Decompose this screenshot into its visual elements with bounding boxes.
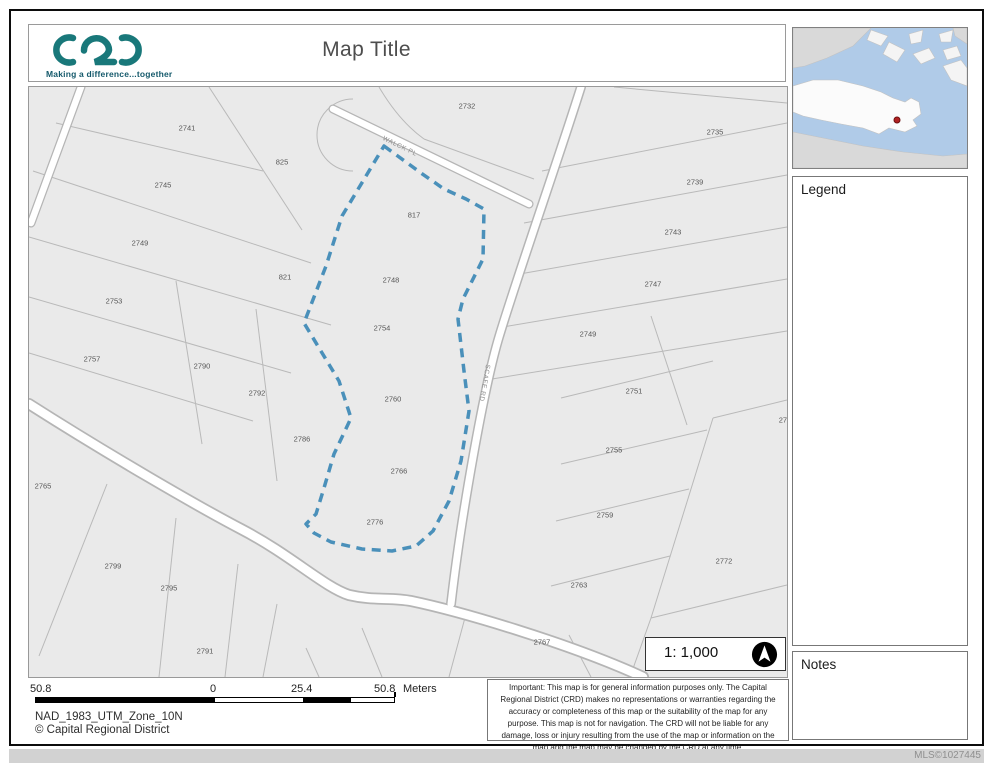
parcel-label: 821 (279, 273, 292, 282)
location-marker-icon (894, 117, 900, 123)
parcel-label: 2776 (367, 518, 384, 527)
parcel-label: 2767 (534, 638, 551, 647)
parcel-label: 2732 (459, 102, 476, 111)
logo-tagline: Making a difference...together (46, 69, 172, 79)
scalebar-segment (214, 697, 304, 703)
parcel-label: 2795 (161, 584, 178, 593)
bottom-strip: MLS©1027445 (9, 749, 984, 763)
parcel-label: 2791 (197, 647, 214, 656)
page-title: Map Title (269, 38, 464, 62)
scalebar-label-left: 50.8 (30, 683, 51, 695)
scalebar-units: Meters (403, 683, 437, 695)
north-arrow-icon (750, 640, 779, 669)
parcel-label: 2751 (626, 387, 643, 396)
parcel-label: 2748 (383, 276, 400, 285)
parcel-label: 2739 (687, 178, 704, 187)
notes-title: Notes (801, 657, 836, 672)
scale-indicator: 1: 1,000 (645, 637, 786, 671)
scalebar-segment (35, 697, 214, 703)
parcel-label: 2743 (665, 228, 682, 237)
parcel-label: 2799 (105, 562, 122, 571)
parcel-label: 2765 (35, 482, 52, 491)
notes-panel: Notes (792, 651, 968, 740)
parcel-label: 2772 (716, 557, 733, 566)
parcel-label: 2760 (385, 395, 402, 404)
scalebar-label-zero: 0 (210, 683, 216, 695)
parcel-label: 2766 (391, 467, 408, 476)
crd-logo-icon (43, 29, 153, 71)
parcel-label: 2755 (606, 446, 623, 455)
projection-label: NAD_1983_UTM_Zone_10N (35, 711, 183, 723)
parcel-label: 2786 (294, 435, 311, 444)
parcel-label: 2792 (249, 389, 266, 398)
parcel-label: 2763 (571, 581, 588, 590)
scalebar-label-mid: 25.4 (291, 683, 312, 695)
parcel-label: 2741 (179, 124, 196, 133)
parcel-label-layer: 2741825273227458172735273927492743821274… (29, 87, 787, 677)
parcel-label: 817 (408, 211, 421, 220)
copyright-label: © Capital Regional District (35, 724, 169, 736)
parcel-label: 277 (779, 416, 788, 425)
parcel-label: 2735 (707, 128, 724, 137)
scale-ratio: 1: 1,000 (664, 644, 718, 661)
parcel-label: 2745 (155, 181, 172, 190)
parcel-label: 2747 (645, 280, 662, 289)
parcel-label: 2749 (132, 239, 149, 248)
legend-title: Legend (801, 182, 846, 197)
inset-overview-map (792, 27, 968, 169)
scalebar-segment (350, 697, 395, 703)
header: Making a difference...together Map Title (28, 24, 786, 82)
scalebar-segment (304, 697, 350, 703)
disclaimer-box: Important: This map is for general infor… (487, 679, 789, 741)
parcel-label: 825 (276, 158, 289, 167)
parcel-label: 2749 (580, 330, 597, 339)
scalebar-label-right: 50.8 (374, 683, 395, 695)
legend-panel: Legend (792, 176, 968, 646)
parcel-label: 2759 (597, 511, 614, 520)
parcel-label: 2757 (84, 355, 101, 364)
parcel-label: 2754 (374, 324, 391, 333)
parcel-label: 2790 (194, 362, 211, 371)
map-canvas: 2741825273227458172735273927492743821274… (28, 86, 788, 678)
scalebar-end-tick (394, 692, 396, 697)
mls-number: MLS©1027445 (914, 750, 981, 761)
parcel-label: 2753 (106, 297, 123, 306)
inset-map-graphic (793, 28, 967, 168)
